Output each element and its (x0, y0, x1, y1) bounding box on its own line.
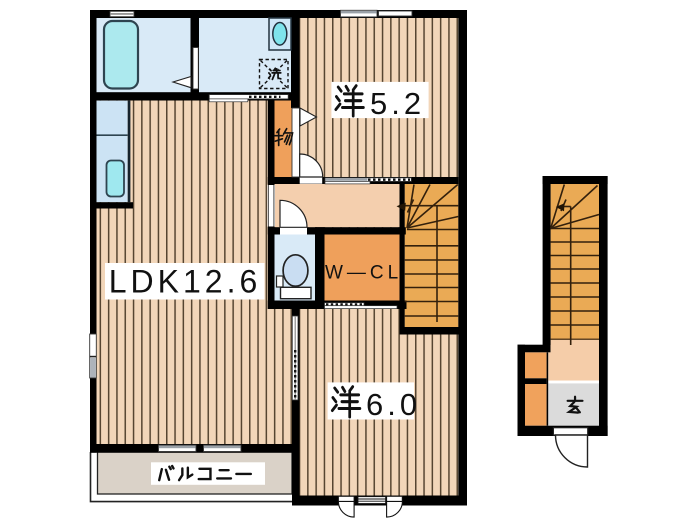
svg-text:LDK12.6: LDK12.6 (109, 264, 262, 300)
svg-text:6.0: 6.0 (366, 387, 421, 422)
svg-text:W—CL: W—CL (325, 263, 402, 284)
svg-text:5.2: 5.2 (370, 86, 425, 121)
